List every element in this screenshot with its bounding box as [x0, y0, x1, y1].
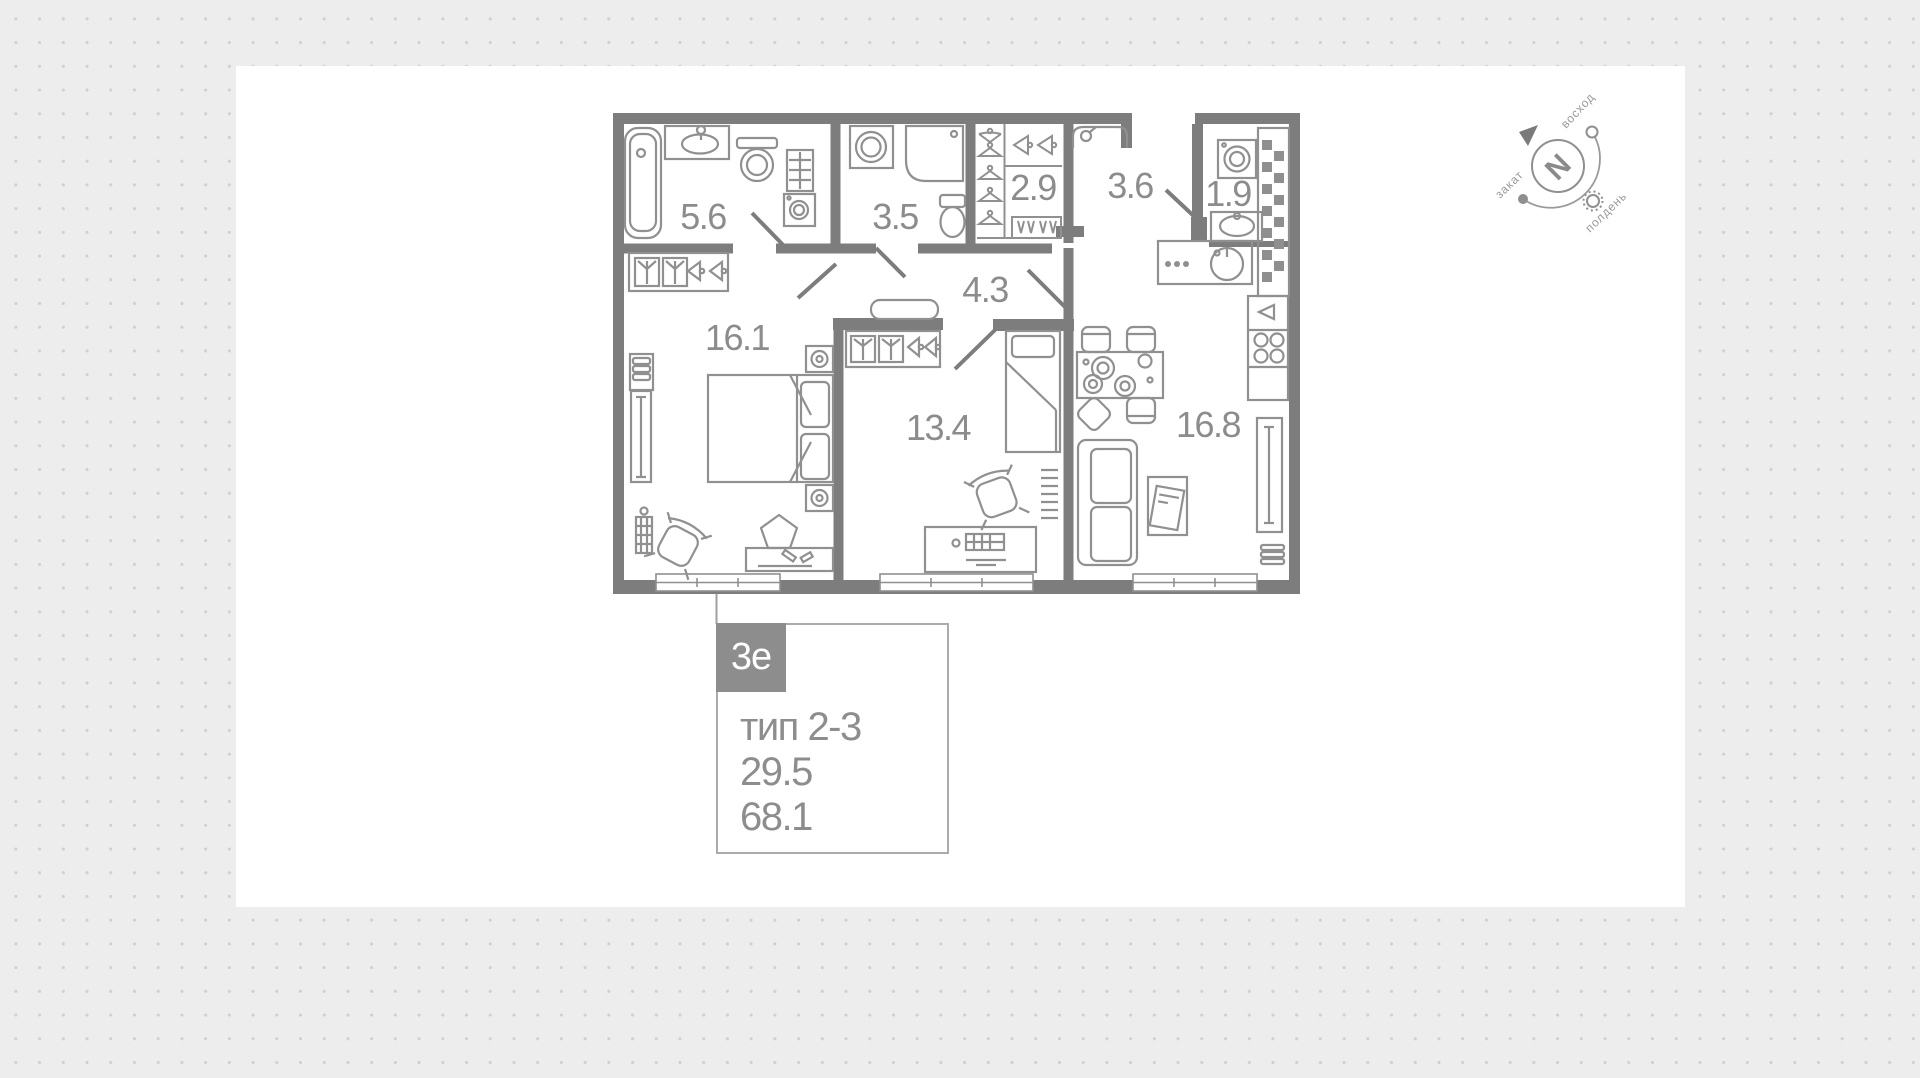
room-laundry: 1.9 — [1205, 128, 1289, 296]
hanger-rail-icon — [979, 129, 1001, 224]
door-kitchen — [1028, 270, 1066, 308]
bathtub-icon — [625, 128, 661, 238]
sunset-icon — [1518, 194, 1528, 204]
nightstand-icon — [806, 346, 833, 372]
hanger-icon — [1014, 136, 1056, 154]
windows — [656, 574, 1257, 591]
sink-icon — [1211, 212, 1262, 241]
compass: N восход закат полдень — [1492, 90, 1629, 235]
washbasin-icon — [850, 126, 893, 168]
chair-icon — [1127, 398, 1155, 423]
shoe-rack-icon — [1012, 217, 1061, 238]
sunrise-icon — [1587, 127, 1598, 138]
page-background: 5.6 3.5 — [0, 0, 1920, 1078]
toilet-icon — [940, 195, 965, 237]
room-wardrobe: 2.9 — [977, 124, 1062, 238]
double-bed-icon — [708, 375, 833, 482]
shower-icon — [906, 126, 963, 181]
toilet-icon — [737, 138, 777, 181]
dresser-icon — [630, 354, 653, 390]
unit-total-area: 68.1 — [740, 795, 861, 840]
room-bedroom: 16.1 — [629, 253, 833, 580]
unit-type: тип 2-3 — [740, 705, 861, 750]
washbasin-icon — [665, 126, 729, 159]
unit-info: тип 2-3 29.5 68.1 — [740, 705, 861, 840]
room-area-label: 3.6 — [1107, 165, 1153, 206]
room-bedroom-2: 13.4 — [846, 331, 1060, 572]
vent-shaft-icon — [1258, 128, 1289, 296]
compass-sunrise-label: восход — [1558, 90, 1598, 131]
desk-chair-icon — [644, 512, 712, 580]
door-bathroom — [752, 213, 788, 250]
ladder-radiator-icon — [1041, 470, 1058, 518]
floor-plan-svg: 5.6 3.5 — [0, 0, 1920, 1078]
window-bedroom-2 — [880, 574, 1033, 591]
kitchen-cabinets-icon — [1248, 296, 1288, 400]
console-icon — [1073, 127, 1127, 148]
window-kitchen — [1133, 574, 1257, 591]
room-area-label: 13.4 — [906, 407, 971, 448]
wardrobe-strip-icon — [1257, 418, 1282, 532]
room-area-label: 5.6 — [680, 196, 726, 237]
shelf-icon — [787, 150, 813, 191]
room-area-label: 1.9 — [1205, 173, 1251, 214]
room-area-label: 2.9 — [1010, 167, 1056, 208]
chair-icon — [1082, 327, 1110, 352]
bench-icon — [746, 548, 833, 571]
unit-badge: 3е — [716, 623, 786, 692]
sofa-icon — [1078, 440, 1137, 565]
door-bedroom — [798, 264, 836, 298]
room-kitchen-living: 16.8 — [1076, 241, 1288, 565]
room-area-label: 3.5 — [872, 196, 918, 237]
radiator-icon — [636, 508, 652, 554]
north-arrow-icon — [1519, 125, 1538, 146]
room-area-label: 16.8 — [1176, 404, 1241, 445]
info-card[interactable]: 3е тип 2-3 29.5 68.1 — [716, 623, 949, 854]
nightstand-icon — [806, 485, 833, 511]
window-bedroom — [656, 574, 780, 591]
desk-icon — [925, 527, 1036, 572]
wardrobe-icon — [846, 331, 940, 367]
room-area-label: 4.3 — [962, 269, 1008, 310]
kitchen-counter-icon — [1158, 241, 1252, 284]
dining-table-icon — [1077, 352, 1163, 398]
chair-icon — [1076, 396, 1113, 433]
door-toilet — [876, 248, 905, 277]
pouf-icon — [761, 515, 797, 548]
hall-cabinet-icon — [871, 300, 938, 319]
room-bathroom: 5.6 — [625, 126, 815, 238]
single-bed-icon — [1006, 331, 1060, 452]
desk-chair-icon — [964, 465, 1029, 530]
unit-living-area: 29.5 — [740, 750, 861, 795]
room-corridor: 4.3 — [871, 269, 1008, 319]
room-hall: 3.6 — [1073, 127, 1153, 206]
radiator-icon — [1261, 545, 1284, 564]
wardrobe-strip-icon — [631, 391, 651, 482]
door-bedroom-2 — [955, 330, 995, 369]
wardrobe-icon — [629, 253, 728, 291]
chair-icon — [1127, 327, 1155, 352]
tv-stand-icon — [1148, 477, 1187, 535]
room-toilet: 3.5 — [850, 126, 965, 237]
washing-machine-icon — [784, 194, 815, 226]
room-area-label: 16.1 — [705, 317, 770, 358]
